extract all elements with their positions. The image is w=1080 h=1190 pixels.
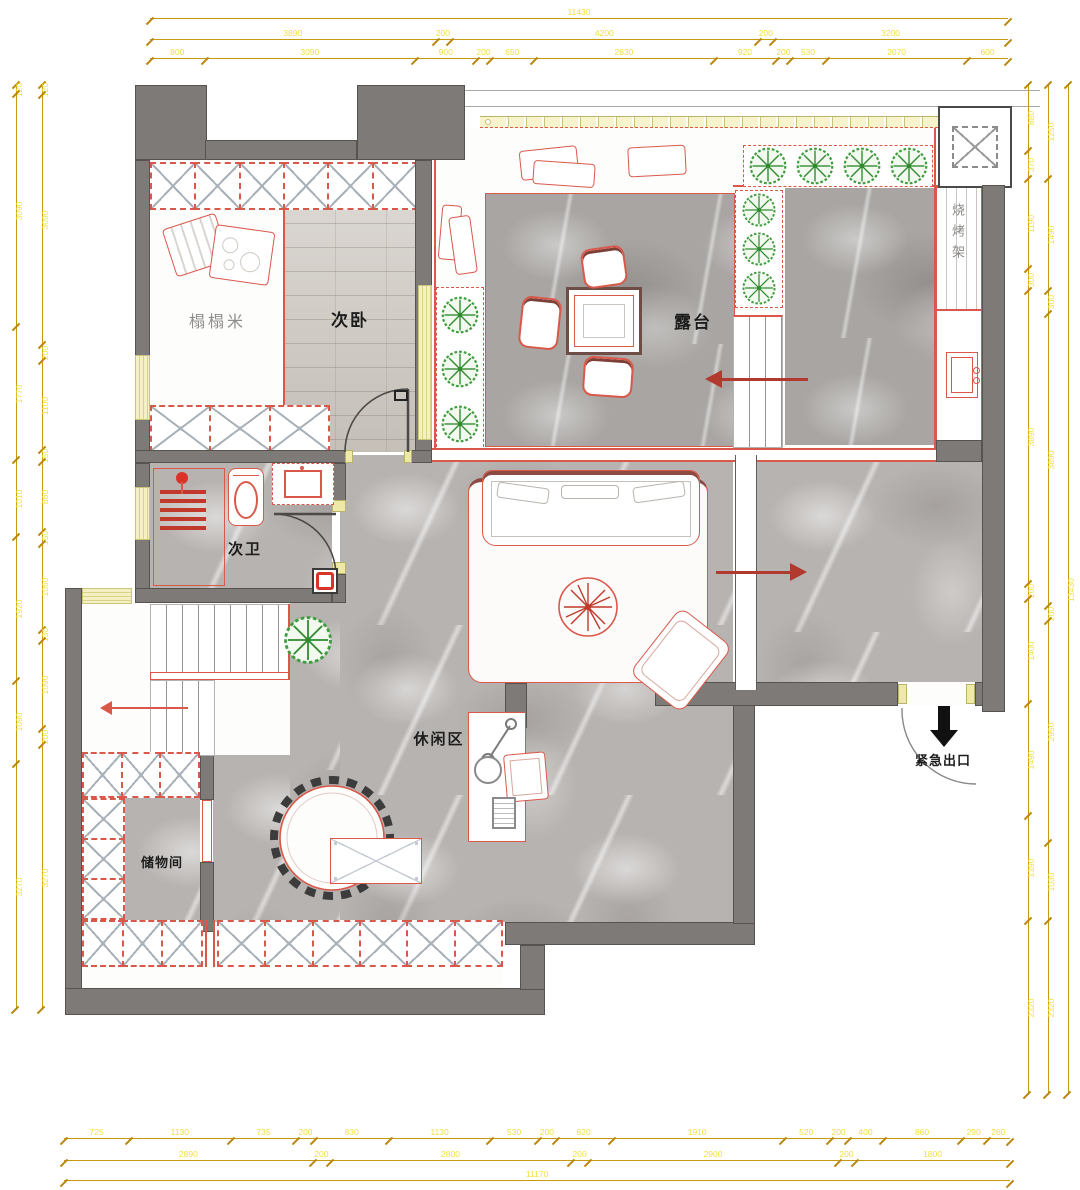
bathroom-vanity <box>272 463 334 505</box>
floor-cushion <box>582 355 635 398</box>
door-opening-line <box>205 920 207 967</box>
stair-direction-arrow <box>112 707 188 709</box>
elevator-shaft <box>938 106 1012 188</box>
cabinet-x-cell <box>217 920 266 967</box>
plant-icon <box>741 231 777 267</box>
wall-east-inner <box>733 688 755 924</box>
wall-pillar <box>135 85 207 160</box>
plant-icon <box>741 192 777 228</box>
wall-living-south <box>505 922 755 945</box>
floor-drain-device <box>312 568 338 594</box>
rug-plant-icon <box>556 575 620 639</box>
tatami-foot-cabinets[interactable] <box>150 405 330 452</box>
wall <box>410 450 432 463</box>
cabinet-x-cell <box>454 920 503 967</box>
toilet <box>228 468 264 526</box>
floor-plan-page: { "labels": { "tatami": "榻榻米", "bedroom"… <box>0 0 1080 1190</box>
window-stair <box>82 588 132 604</box>
floor-cushion <box>517 295 562 351</box>
south-cabinets-left[interactable] <box>82 920 203 967</box>
stair-handrail <box>150 672 290 680</box>
cabinet-x-cell <box>82 752 123 798</box>
plant-icon <box>741 270 777 306</box>
tatami-label: 榻榻米 <box>150 308 285 332</box>
terrace-pillow <box>627 145 686 178</box>
plant-icon <box>440 295 480 335</box>
dim-chain-bottom-detail: 7251130735200830113053020062019105202004… <box>64 1124 1010 1139</box>
window-west <box>135 355 150 420</box>
terrace-tea-table <box>566 287 642 355</box>
shower-bench <box>160 490 206 530</box>
tatami-head-cabinets[interactable] <box>150 162 418 210</box>
cabinet-x-cell <box>150 405 211 452</box>
dim-chain-top-total: 11430 <box>150 4 1008 19</box>
cabinet-x-cell <box>209 405 270 452</box>
cabinet-x-cell <box>269 405 330 452</box>
cabinet-x-cell <box>122 920 164 967</box>
cabinet-x-cell <box>239 162 285 210</box>
plant-icon <box>440 404 480 444</box>
wall-storage-east <box>200 752 214 800</box>
cabinet-x-cell <box>161 920 203 967</box>
elevator-car-icon <box>952 126 998 168</box>
planter-row <box>743 145 933 187</box>
plant-icon <box>440 349 480 389</box>
cabinet-x-cell <box>194 162 240 210</box>
staircase-lower-flight[interactable] <box>150 680 215 756</box>
floor-plant-icon <box>282 614 334 666</box>
door-opening-line <box>213 920 215 967</box>
plant-icon <box>748 146 788 186</box>
wall-outer-east <box>982 185 1005 712</box>
desk-chair <box>503 751 549 802</box>
desk-stool <box>474 756 502 784</box>
door-jamb <box>966 684 975 704</box>
storage-top-cabinets[interactable] <box>82 752 200 798</box>
living-flow-arrow <box>716 571 790 574</box>
wall-outer-south <box>65 988 545 1015</box>
door-jamb <box>898 684 907 704</box>
cabinet-x-cell <box>264 920 313 967</box>
mahjong-table <box>330 838 422 884</box>
cabinet-x-cell <box>159 752 200 798</box>
terrace-flow-arrow <box>722 378 808 381</box>
terrace-railing <box>480 116 938 128</box>
dim-chain-right-total: 13430 <box>1062 85 1077 1095</box>
cabinet-x-cell <box>327 162 373 210</box>
dim-chain-right-mid: 125014903003890200295010302320 <box>1042 85 1057 1095</box>
bed-pillow <box>209 224 276 286</box>
terrace-east-stone-floor <box>785 188 936 445</box>
storage-door[interactable] <box>202 800 212 862</box>
exit-direction-arrow-head <box>930 730 958 747</box>
sofa <box>482 470 700 546</box>
planter-column-east <box>735 190 783 308</box>
bathroom-label: 次卫 <box>205 538 285 559</box>
storage-side-cabinets[interactable] <box>82 798 125 920</box>
cabinet-x-cell <box>82 878 125 920</box>
exit-direction-arrow <box>938 706 950 730</box>
floor-cushion <box>579 244 628 290</box>
bedroom-door[interactable] <box>343 387 410 454</box>
terrace-living-divider <box>432 448 936 462</box>
planter-column-west <box>436 287 484 452</box>
window-bedroom-terrace <box>418 285 432 440</box>
plant-icon <box>889 146 929 186</box>
cabinet-x-cell <box>82 838 125 880</box>
emergency-exit-label: 紧急出口 <box>898 750 988 769</box>
cabinet-x-cell <box>283 162 329 210</box>
wall-step <box>520 945 545 990</box>
bedroom-label: 次卧 <box>285 306 415 331</box>
wall-stub <box>936 440 982 462</box>
dim-chain-right-inner: 880370119030038902001400149013902320 <box>1022 85 1037 1095</box>
plant-icon <box>842 146 882 186</box>
wall-bathroom-south <box>135 588 332 603</box>
cabinet-x-cell <box>359 920 408 967</box>
cabinet-x-cell <box>406 920 455 967</box>
cabinet-x-cell <box>82 920 124 967</box>
wall <box>205 140 357 160</box>
terrace-stairs[interactable] <box>733 315 783 448</box>
dim-chain-left-inner: 1203090200110015086015010601301090200327… <box>36 85 51 1010</box>
south-ledge <box>82 967 503 988</box>
terrace-pillow <box>532 160 596 188</box>
exit-door-opening <box>898 682 975 706</box>
plant-icon <box>795 146 835 186</box>
staircase-upper-flight[interactable] <box>150 604 290 674</box>
wall <box>135 450 347 463</box>
terrace-label: 露台 <box>648 308 738 333</box>
wall-outer-west <box>65 588 82 1015</box>
balcony-edge-line <box>465 90 1040 91</box>
dim-chain-top-detail: 800309090020065026309202005302070600 <box>150 44 1008 59</box>
dim-chain-top-mid: 389020042002003200 <box>150 25 1008 40</box>
cabinet-x-cell <box>312 920 361 967</box>
south-cabinets-right[interactable] <box>217 920 503 967</box>
cabinet-x-cell <box>121 752 162 798</box>
storage-label: 储物间 <box>123 852 201 871</box>
dim-chain-left-outer: 120309017701010192010903270 <box>10 85 25 1010</box>
shower-stem <box>181 482 183 494</box>
cabinet-x-cell <box>150 162 196 210</box>
dim-chain-bottom-total: 11170 <box>64 1166 1010 1181</box>
wall-pillar <box>357 85 465 160</box>
cabinet-x-cell <box>82 798 125 840</box>
bbq-label: 烧烤架 <box>948 203 967 266</box>
dim-chain-bottom-mid: 2890200280020029002001800 <box>64 1146 1010 1161</box>
cabinet-x-cell <box>372 162 418 210</box>
window-bathroom <box>135 487 150 540</box>
outdoor-sink <box>946 352 978 398</box>
printer-icon <box>492 797 516 829</box>
